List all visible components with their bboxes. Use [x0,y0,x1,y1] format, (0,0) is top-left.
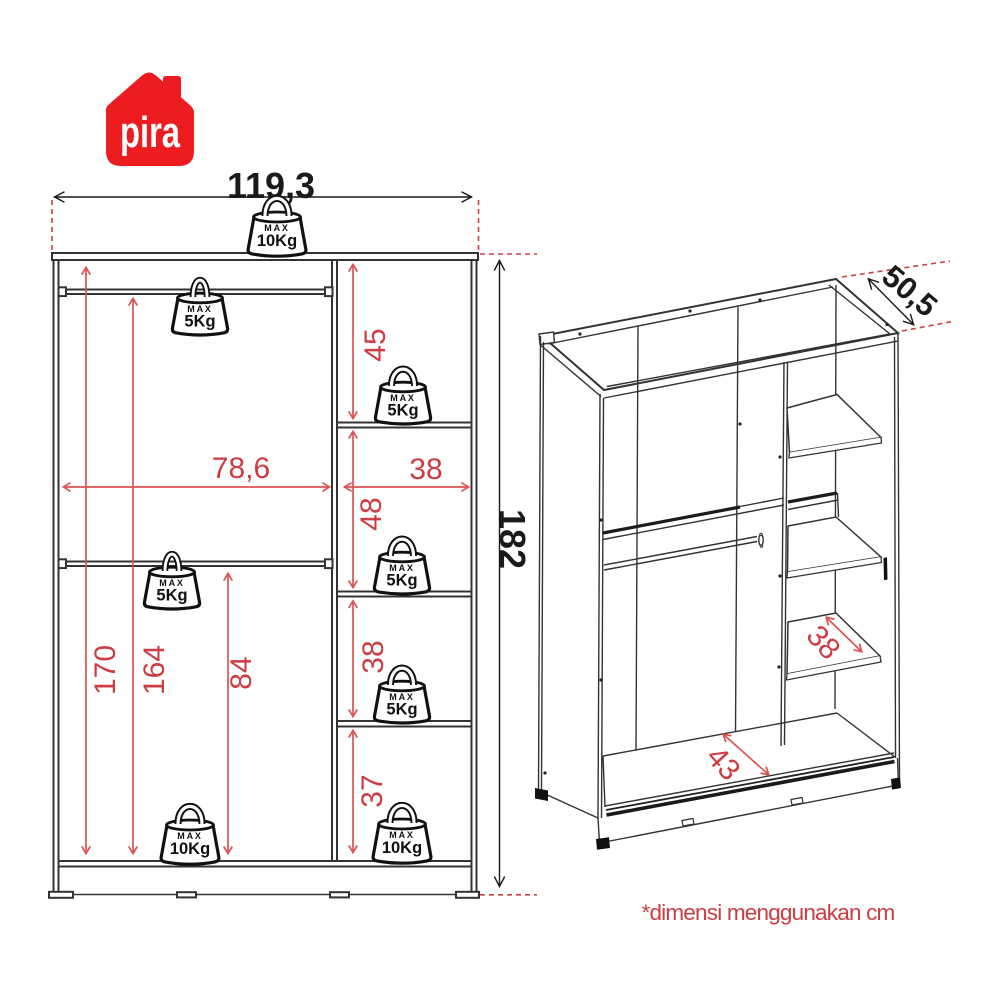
svg-text:170: 170 [89,645,122,695]
svg-text:84: 84 [225,656,258,689]
svg-text:38: 38 [357,640,390,673]
svg-text:pira: pira [120,108,180,157]
svg-text:37: 37 [356,774,389,807]
svg-text:45: 45 [359,328,392,361]
svg-text:*dimensi menggunakan cm: *dimensi menggunakan cm [642,900,895,925]
svg-text:164: 164 [138,645,171,695]
svg-text:38: 38 [409,453,442,486]
svg-text:182: 182 [492,509,533,569]
svg-text:78,6: 78,6 [212,452,270,485]
svg-text:48: 48 [355,497,388,530]
